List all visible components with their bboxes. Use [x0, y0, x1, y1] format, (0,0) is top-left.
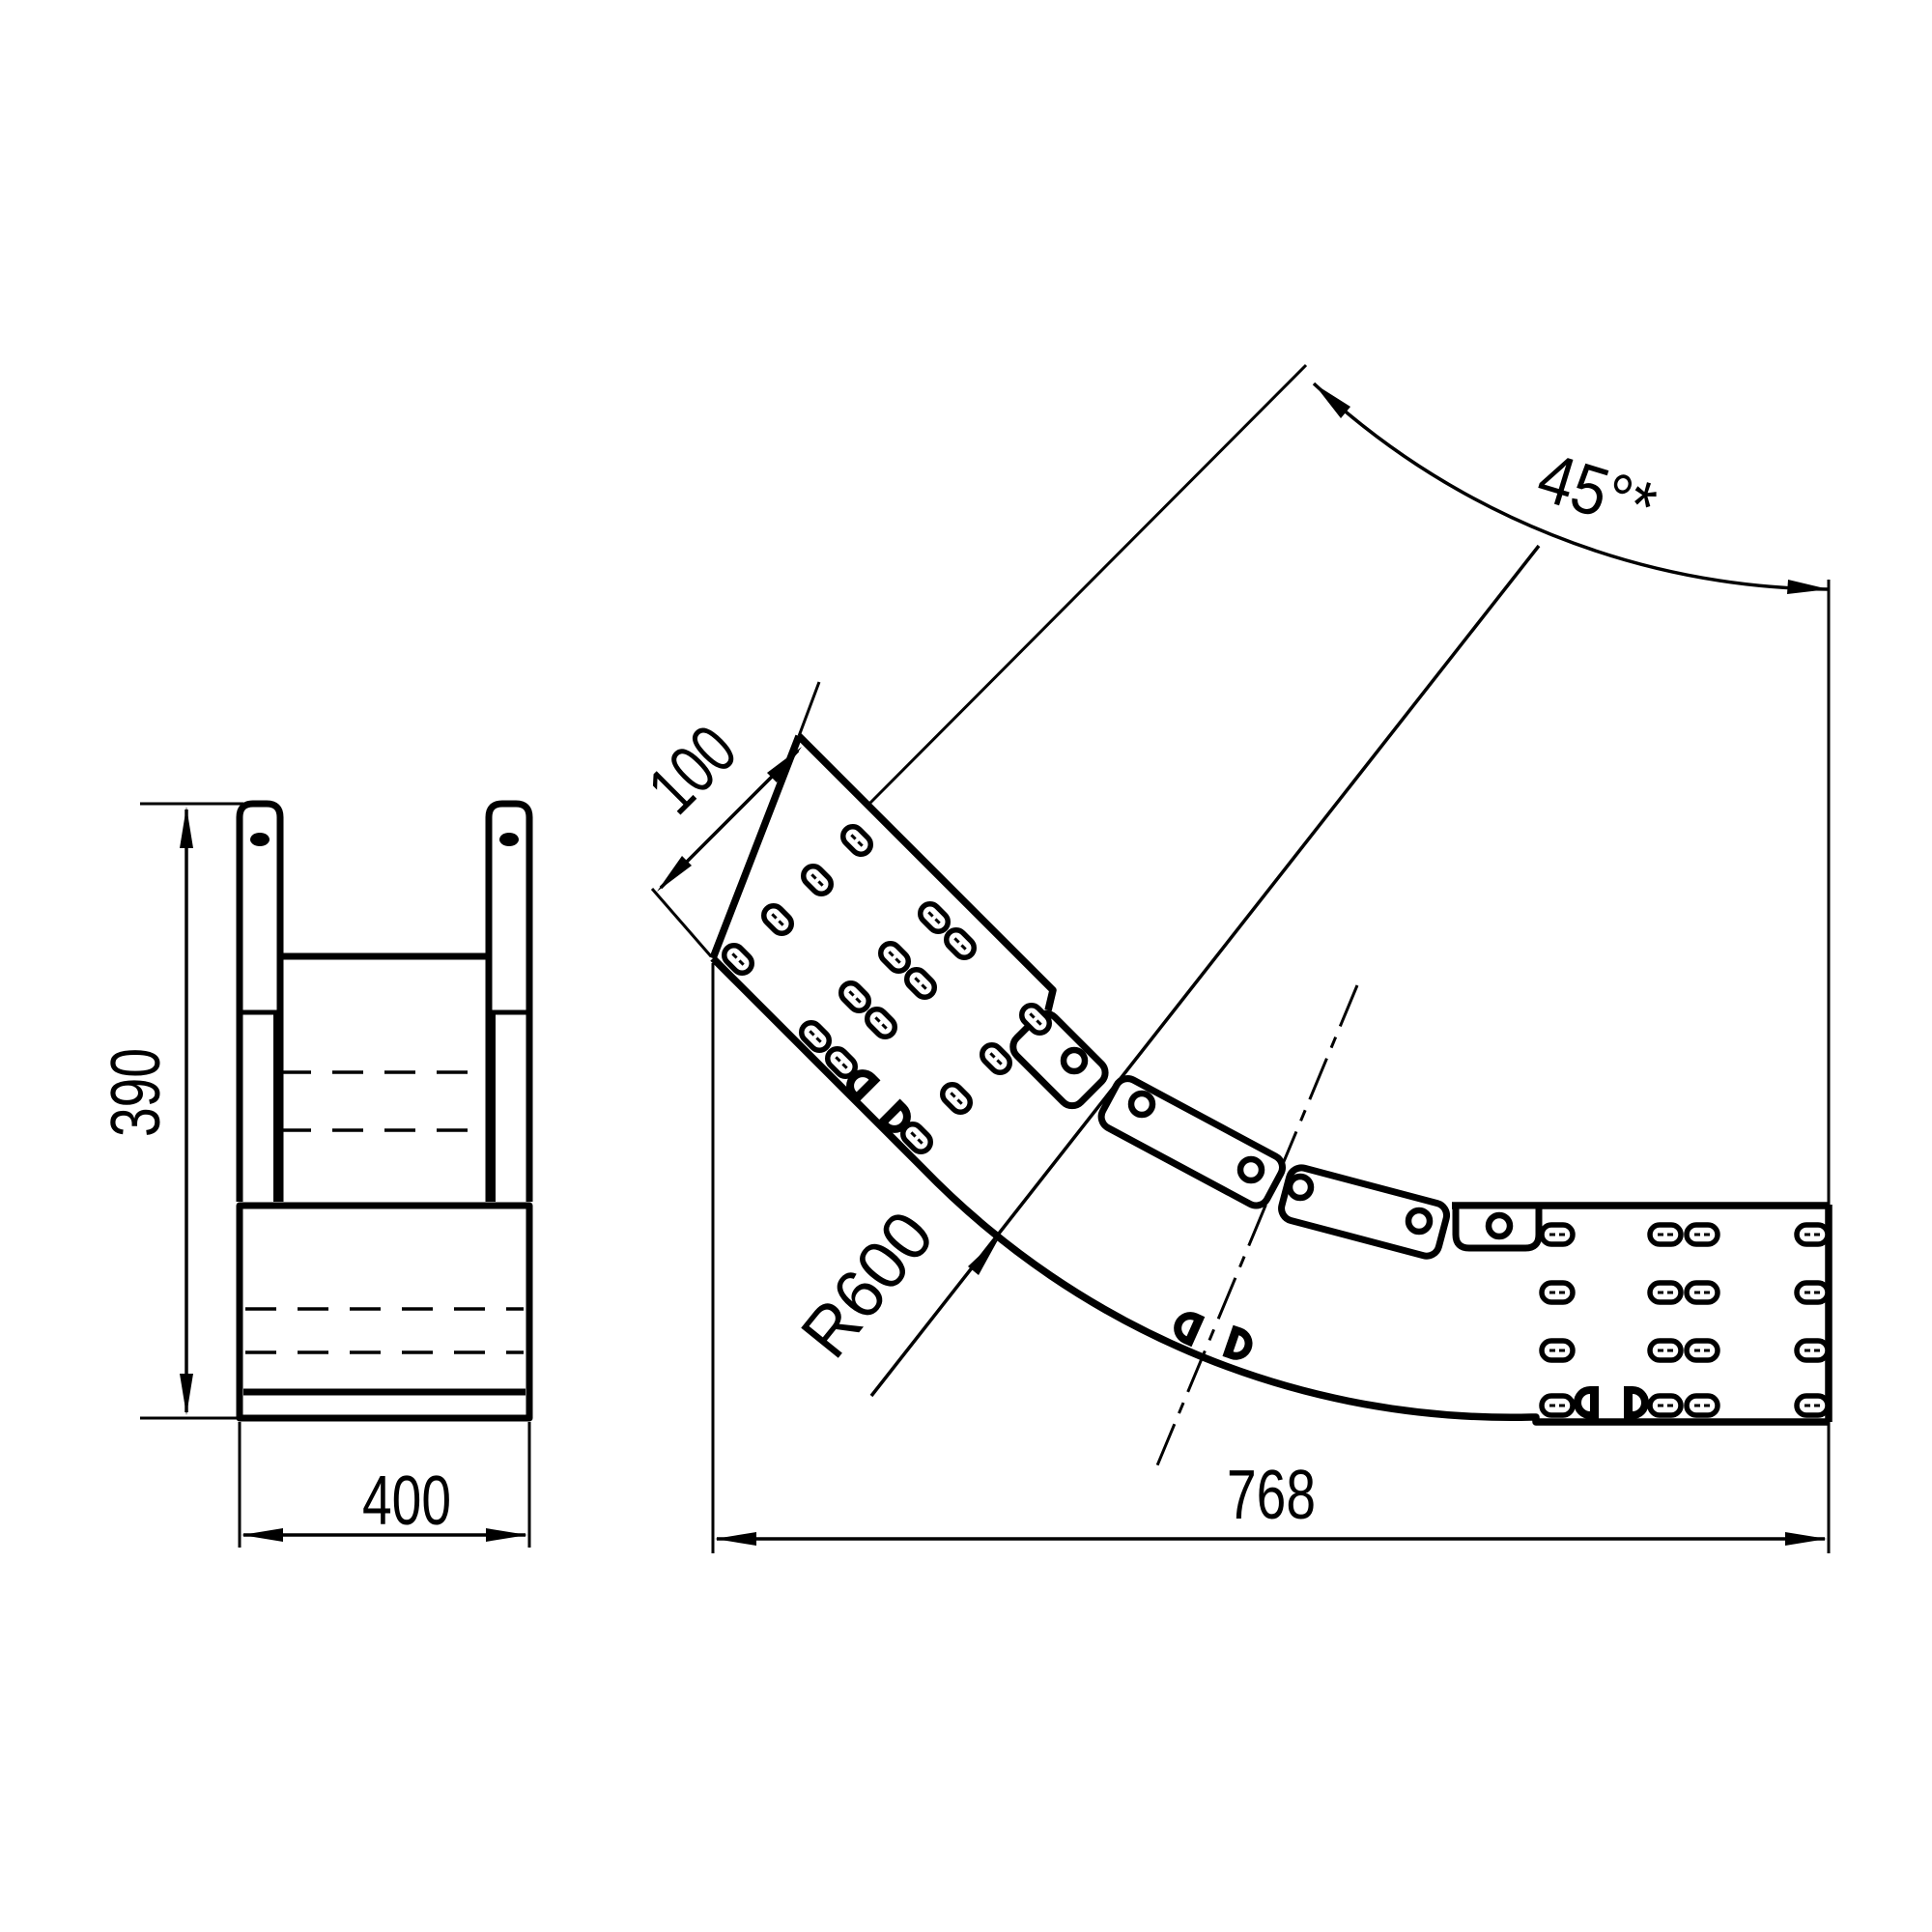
slot-hole: [1797, 1396, 1828, 1415]
slot-hole: [877, 940, 913, 976]
splice-plate: [1097, 1074, 1288, 1210]
dim-400-label: 400: [362, 1463, 451, 1540]
angle-extension-line: [867, 365, 1306, 807]
cable-tray-bend-drawing: 390 400: [0, 0, 1932, 1932]
dim-768-label: 768: [1227, 1457, 1316, 1534]
slot-hole: [839, 823, 875, 859]
slot-hole: [939, 1081, 975, 1117]
arrowhead-icon: [715, 1532, 756, 1546]
slot-hole: [903, 966, 939, 1002]
tray-outer-edge: [799, 736, 1053, 1010]
dim-r600: R600: [786, 1197, 1000, 1372]
slot-hole: [1542, 1225, 1573, 1244]
rail-hole: [499, 833, 519, 846]
slot-hole: [1650, 1341, 1681, 1360]
slot-hole: [917, 900, 952, 936]
slot-hole: [1687, 1283, 1718, 1302]
arrowhead-icon: [486, 1528, 527, 1542]
bolt-hole: [1240, 1159, 1262, 1180]
slot-hole: [800, 863, 836, 898]
side-view: 390 400: [98, 804, 529, 1548]
arrowhead-icon: [1787, 580, 1829, 594]
dim-100-label: 100: [634, 711, 752, 829]
slot-hole: [1687, 1396, 1718, 1415]
slot-hole: [1797, 1341, 1828, 1360]
bolt-hole: [1408, 1210, 1430, 1232]
dim-r600-label: R600: [786, 1197, 949, 1372]
bolt-hole: [1064, 1050, 1085, 1071]
arrowhead-icon: [241, 1528, 283, 1542]
arrowhead-icon: [180, 807, 193, 848]
dim-768: 768: [715, 1457, 1827, 1546]
dim-45-label: 45°*: [1529, 439, 1664, 547]
slot-grid-right-arm: [1542, 1225, 1828, 1415]
slot-hole: [1650, 1396, 1681, 1415]
dim-400: 400: [240, 1422, 529, 1548]
arrowhead-icon: [968, 1236, 1000, 1275]
bolt-hole: [1290, 1177, 1311, 1198]
dim-390-label: 390: [98, 1048, 175, 1137]
slot-hole: [1687, 1225, 1718, 1244]
slot-hole: [1687, 1341, 1718, 1360]
dim-45deg: 45°*: [1314, 384, 1829, 594]
slot-hole: [864, 1006, 899, 1041]
corner-extension: [652, 889, 711, 956]
slot-hole: [1542, 1396, 1573, 1415]
slot-hole: [760, 902, 796, 938]
dim-390: 390: [98, 804, 243, 1418]
arrowhead-icon: [180, 1374, 193, 1415]
slot-hole: [838, 980, 873, 1015]
slot-grid-upper-arm: [721, 823, 1054, 1156]
slot-hole: [943, 926, 979, 962]
cable-clamp-icon: [1223, 1325, 1258, 1365]
bend-view: 100 R600 45°* 768: [634, 365, 1829, 1553]
cable-clamp-icon: [1574, 1386, 1599, 1419]
arrowhead-icon: [657, 856, 692, 892]
bolt-hole: [1131, 1094, 1152, 1115]
slot-hole: [1542, 1283, 1573, 1302]
slot-hole: [1650, 1225, 1681, 1244]
rail-hole: [250, 833, 270, 846]
technical-drawing-canvas: 390 400: [0, 0, 1932, 1932]
slot-hole: [1650, 1283, 1681, 1302]
slot-hole: [1797, 1283, 1828, 1302]
slot-hole: [1797, 1225, 1828, 1244]
slot-hole: [979, 1041, 1014, 1077]
arrowhead-icon: [1785, 1532, 1827, 1546]
arrowhead-icon: [1314, 384, 1350, 418]
bolt-hole: [1489, 1215, 1510, 1236]
cable-clamp-icon: [1624, 1386, 1649, 1419]
end-edge-extension: [799, 682, 819, 736]
slot-hole: [1542, 1341, 1573, 1360]
tray-body-section: [240, 1206, 529, 1418]
